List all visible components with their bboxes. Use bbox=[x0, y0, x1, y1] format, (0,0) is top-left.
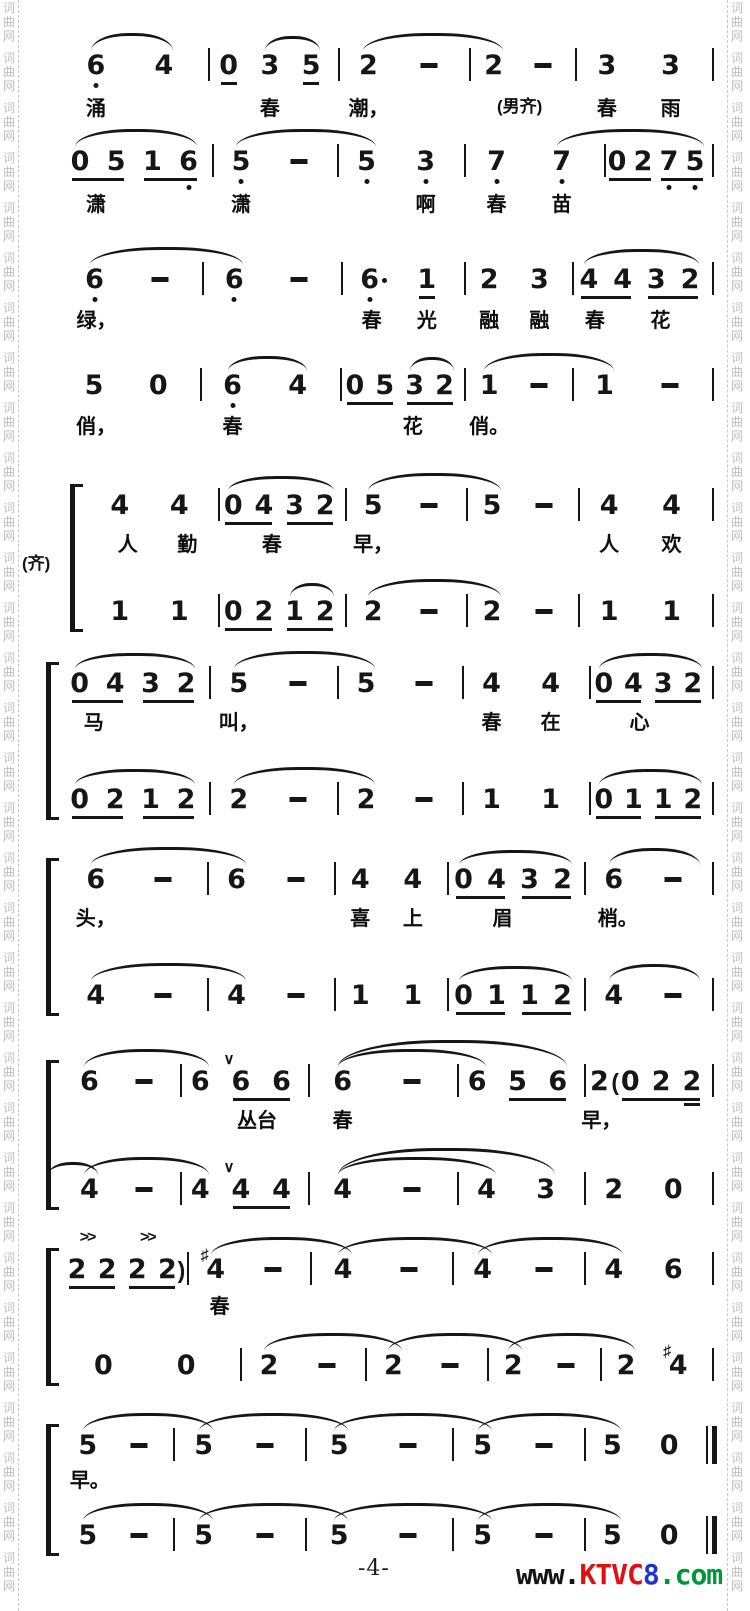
watermark-left-char: 曲 bbox=[3, 466, 15, 478]
barline bbox=[712, 1348, 714, 1381]
note: 2 bbox=[254, 598, 273, 625]
watermark-right-char: 词 bbox=[731, 752, 743, 764]
watermark-right-char: 网 bbox=[731, 1480, 743, 1492]
slur-tie bbox=[264, 1333, 402, 1351]
watermark-left-char: 词 bbox=[3, 702, 15, 714]
watermark-right-char: 曲 bbox=[731, 1316, 743, 1328]
note: 1 bbox=[520, 982, 539, 1009]
watermark-left-char: 词 bbox=[3, 1352, 15, 1364]
beam-line bbox=[143, 816, 194, 819]
barline bbox=[578, 488, 580, 521]
barline bbox=[464, 144, 466, 177]
watermark-right-char: 词 bbox=[731, 1102, 743, 1114]
watermark-left-char: 词 bbox=[3, 252, 15, 264]
voice-bracket-hook bbox=[46, 1248, 59, 1251]
watermark-right-char: 曲 bbox=[731, 516, 743, 528]
lyric: 潇 bbox=[231, 188, 251, 217]
watermark-right-char: 词 bbox=[731, 1202, 743, 1214]
watermark-right-char: 曲 bbox=[731, 1466, 743, 1478]
watermark-left-char: 曲 bbox=[3, 1416, 15, 1428]
beam-line-2 bbox=[684, 1103, 700, 1106]
note: 1 bbox=[170, 598, 189, 625]
slur-tie bbox=[338, 1040, 567, 1067]
note: 2 bbox=[683, 1068, 702, 1095]
watermark-right-char: 词 bbox=[731, 702, 743, 714]
barline bbox=[207, 978, 209, 1011]
end-barline bbox=[706, 1426, 708, 1464]
watermark-right-char: 网 bbox=[731, 1230, 743, 1242]
watermark-left-char: 网 bbox=[3, 1280, 15, 1292]
dash-rest-note bbox=[536, 1267, 553, 1272]
watermark-left-char: 曲 bbox=[3, 1116, 15, 1128]
note: 4 bbox=[604, 982, 623, 1009]
lyric: 光 bbox=[417, 304, 437, 333]
watermark-left-char: 网 bbox=[3, 880, 15, 892]
note: 1 bbox=[285, 598, 304, 625]
barline bbox=[337, 144, 339, 177]
watermark-left-char: 词 bbox=[3, 1302, 15, 1314]
beam-line bbox=[648, 296, 698, 299]
watermark-right-char: 曲 bbox=[731, 1116, 743, 1128]
lyric: 丛台 bbox=[237, 1104, 277, 1133]
slur-tie bbox=[584, 249, 699, 265]
lyric: 春 bbox=[262, 528, 282, 557]
watermark-right-char: 词 bbox=[731, 302, 743, 314]
beam-line bbox=[456, 1012, 505, 1015]
watermark-left-char: 网 bbox=[3, 1130, 15, 1142]
note: 5 bbox=[357, 670, 376, 697]
watermark-right-char: 曲 bbox=[731, 866, 743, 878]
slur-tie bbox=[75, 769, 195, 785]
dash-rest-note bbox=[536, 609, 553, 614]
slur-tie bbox=[338, 1148, 555, 1175]
accent-marks: >> bbox=[80, 1229, 95, 1247]
watermark-left-char: 网 bbox=[3, 30, 15, 42]
slur-tie bbox=[609, 848, 701, 865]
watermark-right-char: 网 bbox=[731, 1430, 743, 1442]
watermark-right-char: 曲 bbox=[731, 266, 743, 278]
breath-mark: ∨ bbox=[223, 1158, 234, 1176]
note: 1 bbox=[480, 372, 499, 399]
note: 2 bbox=[590, 1068, 609, 1095]
dash-rest-note bbox=[155, 877, 172, 882]
watermark-right-char: 网 bbox=[731, 280, 743, 292]
barline bbox=[575, 48, 577, 81]
slur-tie bbox=[599, 769, 702, 785]
note: 5 bbox=[78, 1432, 97, 1459]
lyric: 俏， bbox=[76, 410, 116, 439]
watermark-right-char: 网 bbox=[731, 30, 743, 42]
dash-rest-note bbox=[264, 1267, 281, 1272]
logo-com: .com bbox=[659, 1558, 722, 1591]
watermark-right-char: 网 bbox=[731, 430, 743, 442]
watermark-right-char: 网 bbox=[731, 880, 743, 892]
note: 2 bbox=[359, 52, 378, 79]
note: 5 bbox=[483, 492, 502, 519]
parenthesis-open: ( bbox=[611, 1069, 619, 1096]
barline bbox=[469, 48, 471, 81]
watermark-right-char: 网 bbox=[731, 1580, 743, 1592]
note: 2 bbox=[480, 266, 499, 293]
beam-line bbox=[72, 700, 123, 703]
lyric: 梢。 bbox=[598, 902, 638, 931]
dash-rest-note bbox=[319, 1363, 336, 1368]
watermark-right-char: 曲 bbox=[731, 66, 743, 78]
note: 0 bbox=[660, 1432, 679, 1459]
slur-tie bbox=[91, 847, 246, 865]
watermark-left-char: 曲 bbox=[3, 316, 15, 328]
end-barline bbox=[712, 1426, 717, 1464]
watermark-left-char: 曲 bbox=[3, 1316, 15, 1328]
beam-line bbox=[225, 522, 272, 525]
octave-dot bbox=[693, 185, 698, 190]
octave-dot bbox=[364, 179, 369, 184]
barline bbox=[341, 262, 343, 295]
dash-rest-note bbox=[557, 1363, 574, 1368]
barline bbox=[600, 1348, 602, 1381]
barline bbox=[365, 1348, 367, 1381]
barline bbox=[305, 1518, 307, 1551]
note: 4 bbox=[154, 52, 173, 79]
watermark-left-char: 词 bbox=[3, 602, 15, 614]
watermark-left-char: 曲 bbox=[3, 116, 15, 128]
watermark-right-char: 词 bbox=[731, 652, 743, 664]
watermark-left-char: 词 bbox=[3, 1452, 15, 1464]
note: 6 bbox=[548, 1068, 567, 1095]
slur-tie bbox=[459, 850, 572, 865]
note: 2 bbox=[260, 1352, 279, 1379]
slur-tie bbox=[508, 1333, 635, 1351]
slur-tie bbox=[199, 1413, 348, 1431]
beam-line bbox=[419, 296, 435, 299]
watermark-left-char: 曲 bbox=[3, 366, 15, 378]
barline bbox=[208, 48, 210, 81]
note: 4 bbox=[333, 1176, 352, 1203]
voice-bracket-hook bbox=[46, 1383, 59, 1386]
watermark-right-char: 曲 bbox=[731, 1266, 743, 1278]
beam-line bbox=[287, 522, 334, 525]
note: 1 bbox=[110, 598, 129, 625]
slur-tie bbox=[609, 964, 701, 981]
watermark-right-char: 曲 bbox=[731, 316, 743, 328]
note: 0 bbox=[177, 1352, 196, 1379]
watermark-right-char: 词 bbox=[731, 1552, 743, 1564]
end-barline bbox=[706, 1516, 708, 1554]
watermark-right-char: 网 bbox=[731, 330, 743, 342]
note: 1 bbox=[654, 786, 673, 813]
watermark-left-char: 词 bbox=[3, 302, 15, 314]
note: 5 bbox=[508, 1068, 527, 1095]
lyric: 俏。 bbox=[469, 410, 509, 439]
dash-rest-note bbox=[665, 877, 682, 882]
note: 4 bbox=[477, 1176, 496, 1203]
octave-dot bbox=[92, 297, 97, 302]
watermark-left-char: 曲 bbox=[3, 716, 15, 728]
watermark-right-char: 词 bbox=[731, 552, 743, 564]
watermark-left-char: 曲 bbox=[3, 1216, 15, 1228]
note: 5 bbox=[473, 1522, 492, 1549]
barline bbox=[572, 262, 574, 295]
barline bbox=[187, 1252, 189, 1285]
barline bbox=[578, 594, 580, 627]
lyric: 早。 bbox=[70, 1464, 110, 1493]
lyric: 上 bbox=[403, 902, 423, 931]
watermark-right-char: 词 bbox=[731, 502, 743, 514]
note: 5 bbox=[107, 148, 126, 175]
watermark-left-char: 网 bbox=[3, 1480, 15, 1492]
watermark-left-char: 词 bbox=[3, 902, 15, 914]
slur-tie bbox=[83, 1413, 213, 1431]
watermark-left-char: 网 bbox=[3, 530, 15, 542]
barline bbox=[584, 1252, 586, 1285]
note: 1 bbox=[351, 982, 370, 1009]
dash-rest-note bbox=[257, 1443, 274, 1448]
note: 3 bbox=[536, 1176, 555, 1203]
watermark-left-char: 曲 bbox=[3, 1066, 15, 1078]
note: 6 bbox=[333, 1068, 352, 1095]
watermark-right-char: 词 bbox=[731, 352, 743, 364]
beam-line bbox=[69, 1286, 115, 1289]
watermark-left-char: 词 bbox=[3, 1552, 15, 1564]
watermark-right-char: 词 bbox=[731, 602, 743, 614]
dash-rest-note bbox=[421, 503, 438, 508]
watermark-right-char: 网 bbox=[731, 380, 743, 392]
watermark-left-char: 网 bbox=[3, 580, 15, 592]
barline bbox=[712, 48, 714, 81]
dash-rest-note bbox=[401, 1267, 418, 1272]
slur-tie bbox=[388, 1333, 522, 1351]
note: 0 bbox=[454, 982, 473, 1009]
dash-rest-note bbox=[416, 797, 433, 802]
dash-rest-note bbox=[536, 1443, 553, 1448]
watermark-right-char: 网 bbox=[731, 1380, 743, 1392]
watermark-left-char: 网 bbox=[3, 280, 15, 292]
barline bbox=[334, 862, 336, 895]
watermark-right-char: 曲 bbox=[731, 466, 743, 478]
dash-rest-note bbox=[536, 503, 553, 508]
logo-8: 8 bbox=[643, 1558, 659, 1591]
dash-rest-note bbox=[665, 993, 682, 998]
watermark-right-char: 曲 bbox=[731, 1566, 743, 1578]
note: 6 bbox=[272, 1068, 291, 1095]
lyric: 在 bbox=[541, 706, 561, 735]
barline bbox=[240, 1348, 242, 1381]
voice-bracket-hook bbox=[46, 817, 59, 820]
watermark-left-char: 词 bbox=[3, 52, 15, 64]
note: 6 bbox=[223, 372, 242, 399]
note: 2 bbox=[158, 1256, 177, 1283]
barline bbox=[345, 594, 347, 627]
watermark-right-char: 曲 bbox=[731, 166, 743, 178]
slur-tie bbox=[234, 767, 375, 785]
note: 5 bbox=[302, 52, 321, 79]
watermark-left-char: 曲 bbox=[3, 916, 15, 928]
note: 2 bbox=[229, 786, 248, 813]
note: 0 bbox=[621, 1068, 640, 1095]
watermark-right-char: 网 bbox=[731, 630, 743, 642]
dash-rest-note bbox=[131, 1533, 148, 1538]
watermark-right-char: 曲 bbox=[731, 966, 743, 978]
watermark-right-char: 词 bbox=[731, 1302, 743, 1314]
barline bbox=[209, 666, 211, 699]
lyric: 潮， bbox=[348, 92, 388, 121]
lyric: 春 bbox=[487, 188, 507, 217]
note: 1 bbox=[141, 786, 160, 813]
voice-bracket-hook bbox=[46, 1424, 59, 1427]
note: 1 bbox=[417, 266, 436, 293]
beam-line bbox=[622, 1098, 700, 1101]
note: 1 bbox=[487, 982, 506, 1009]
lyric: 欢 bbox=[661, 528, 681, 557]
lyric: 勤 bbox=[177, 528, 197, 557]
note: 5 bbox=[375, 372, 394, 399]
watermark-left-char: 词 bbox=[3, 1502, 15, 1514]
watermark-right-char: 曲 bbox=[731, 16, 743, 28]
slur-tie bbox=[84, 1049, 209, 1067]
barline bbox=[589, 666, 591, 699]
note: 4 bbox=[80, 1176, 99, 1203]
watermark-right-char: 曲 bbox=[731, 666, 743, 678]
watermark-right-char: 词 bbox=[731, 1052, 743, 1064]
watermark-left-char: 网 bbox=[3, 1330, 15, 1342]
barline bbox=[712, 978, 714, 1011]
breath-mark: ∨ bbox=[223, 1050, 234, 1068]
slur-tie bbox=[338, 1237, 492, 1255]
voice-bracket-hook bbox=[70, 629, 83, 632]
watermark-right-char: 曲 bbox=[731, 1366, 743, 1378]
barline bbox=[584, 1518, 586, 1551]
note: 2 bbox=[504, 1352, 523, 1379]
dash-rest-note bbox=[136, 1079, 153, 1084]
barline bbox=[202, 262, 204, 295]
barline bbox=[207, 862, 209, 895]
note: 1 bbox=[595, 372, 614, 399]
watermark-left-char: 网 bbox=[3, 230, 15, 242]
slur-tie bbox=[410, 357, 454, 371]
slur-tie bbox=[265, 36, 320, 51]
beam-line bbox=[287, 628, 334, 631]
page-number: -4- bbox=[358, 1556, 390, 1581]
note: 0 bbox=[71, 148, 90, 175]
accent-marks: >> bbox=[140, 1229, 155, 1247]
barline bbox=[337, 782, 339, 815]
note: 3 bbox=[416, 148, 435, 175]
dash-rest-note bbox=[661, 383, 678, 388]
slur-tie bbox=[478, 1503, 622, 1521]
note: 3 bbox=[654, 670, 673, 697]
dash-rest-note bbox=[421, 609, 438, 614]
note: 2 bbox=[384, 1352, 403, 1379]
watermark-left-char: 曲 bbox=[3, 1516, 15, 1528]
note: 4 bbox=[351, 866, 370, 893]
watermark-right-char: 网 bbox=[731, 1130, 743, 1142]
barline bbox=[447, 978, 449, 1011]
note: 5 bbox=[330, 1432, 349, 1459]
slur-tie bbox=[334, 1413, 492, 1431]
dash-rest-note bbox=[290, 681, 307, 686]
note: 0 bbox=[224, 492, 243, 519]
watermark-right-char: 词 bbox=[731, 852, 743, 864]
octave-dot bbox=[239, 179, 244, 184]
watermark-right-char: 词 bbox=[731, 802, 743, 814]
watermark-right-char: 词 bbox=[731, 102, 743, 114]
watermark-left-char: 曲 bbox=[3, 216, 15, 228]
lyric: 春 bbox=[482, 706, 502, 735]
watermark-left-char: 网 bbox=[3, 1530, 15, 1542]
lyric: 融 bbox=[529, 304, 549, 333]
voice-bracket-hook bbox=[46, 1060, 59, 1063]
note: 0 bbox=[149, 372, 168, 399]
note: 5 bbox=[232, 148, 251, 175]
watermark-right-char: 网 bbox=[731, 1080, 743, 1092]
watermark-right-char: 网 bbox=[731, 980, 743, 992]
watermark-left-char: 词 bbox=[3, 1202, 15, 1214]
watermark-left-char: 网 bbox=[3, 430, 15, 442]
watermark-right-char: 曲 bbox=[731, 216, 743, 228]
watermark-right-char: 曲 bbox=[731, 566, 743, 578]
beam-line bbox=[456, 896, 505, 899]
voice-bracket bbox=[46, 1424, 51, 1556]
note: 5 bbox=[364, 492, 383, 519]
voice-bracket-hook bbox=[70, 484, 83, 487]
barline bbox=[712, 1172, 714, 1205]
watermark-left-char: 网 bbox=[3, 480, 15, 492]
dash-rest-note bbox=[403, 1079, 420, 1084]
dash-rest-note bbox=[291, 159, 308, 164]
barline bbox=[712, 594, 714, 627]
watermark-left-char: 网 bbox=[3, 330, 15, 342]
note: 6 bbox=[225, 266, 244, 293]
slur-tie bbox=[368, 579, 501, 597]
watermark-right-char: 词 bbox=[731, 1402, 743, 1414]
watermark-right-char: 曲 bbox=[731, 916, 743, 928]
slur-tie bbox=[334, 1503, 492, 1521]
watermark-right-char: 词 bbox=[731, 2, 743, 14]
lyric: 春 bbox=[223, 410, 243, 439]
slur-tie bbox=[84, 1157, 209, 1175]
lyric: 人 bbox=[599, 528, 619, 557]
watermark-left-char: 曲 bbox=[3, 516, 15, 528]
note: 0 bbox=[664, 1176, 683, 1203]
watermark-left-char: 曲 bbox=[3, 266, 15, 278]
note: 4 bbox=[613, 266, 632, 293]
watermark-left-char: 词 bbox=[3, 502, 15, 514]
lyric: 雨 bbox=[661, 92, 681, 121]
augmentation-dot bbox=[382, 278, 387, 283]
barline bbox=[584, 978, 586, 1011]
barline bbox=[584, 1428, 586, 1461]
voice-bracket-hook bbox=[46, 858, 59, 861]
slur-tie bbox=[75, 653, 195, 669]
watermark-left-char: 网 bbox=[3, 1230, 15, 1242]
note: 2 bbox=[553, 982, 572, 1009]
note: 1 bbox=[662, 598, 681, 625]
note: 2 bbox=[617, 1352, 636, 1379]
site-logo: www.KTVC8.com bbox=[516, 1558, 722, 1591]
watermark-left-char: 词 bbox=[3, 802, 15, 814]
watermark-left-char: 曲 bbox=[3, 66, 15, 78]
watermark-left-char: 词 bbox=[3, 552, 15, 564]
watermark-left-char: 曲 bbox=[3, 566, 15, 578]
beam-line bbox=[72, 816, 123, 819]
barline bbox=[712, 782, 714, 815]
slur-tie bbox=[236, 129, 375, 147]
lyric: 春 bbox=[260, 92, 280, 121]
watermark-left-char: 词 bbox=[3, 752, 15, 764]
note: 1 bbox=[600, 598, 619, 625]
watermark-left-char: 网 bbox=[3, 180, 15, 192]
note: 5 bbox=[603, 1432, 622, 1459]
